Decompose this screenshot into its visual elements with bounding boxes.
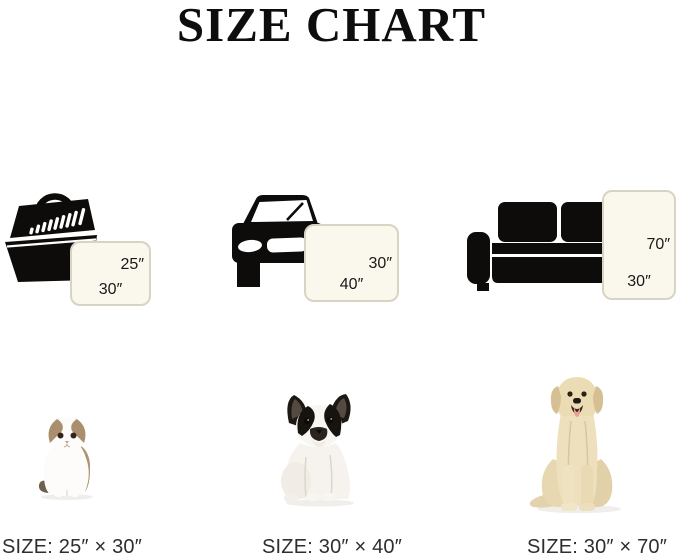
pee-pad-small: 25″ 30″ — [70, 241, 151, 306]
size-caption-large: SIZE: 30″ × 70″ — [527, 536, 667, 559]
labrador-photo — [527, 375, 627, 515]
size-chart-page: SIZE CHART 25″ 30″ — [0, 0, 679, 560]
french-bulldog-photo — [276, 393, 360, 507]
page-title: SIZE CHART — [0, 0, 671, 53]
pad-height-label: 25″ — [121, 256, 144, 274]
pad-width-label: 40″ — [306, 276, 397, 294]
pad-height-label: 30″ — [369, 255, 392, 273]
pee-pad-medium: 30″ 40″ — [304, 224, 399, 302]
size-caption-small: SIZE: 25″ × 30″ — [2, 536, 142, 559]
cat-photo — [36, 414, 98, 500]
pad-width-label: 30″ — [604, 273, 674, 291]
sofa-icon — [466, 199, 611, 291]
pad-height-label: 70″ — [647, 236, 670, 254]
pee-pad-large: 70″ 30″ — [602, 190, 676, 300]
pad-width-label: 30″ — [72, 281, 149, 299]
size-caption-medium: SIZE: 30″ × 40″ — [262, 536, 402, 559]
